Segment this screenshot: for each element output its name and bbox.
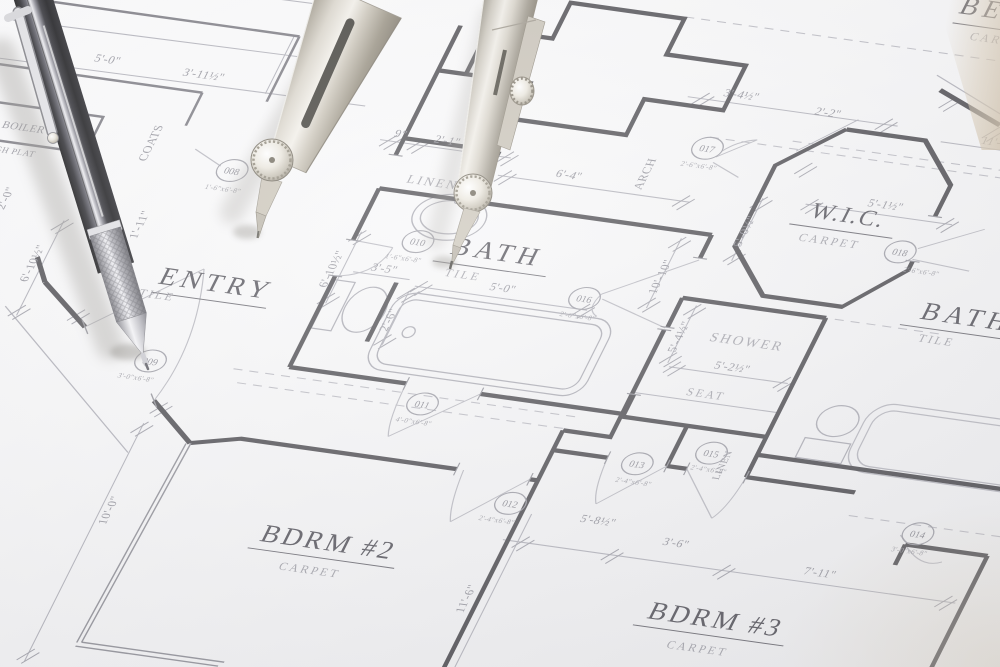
room-label-bdrm3: BDRM #3 <box>643 597 789 642</box>
label-arch: ARCH <box>630 157 660 191</box>
dim-text: 2'-0" <box>0 186 18 211</box>
divider-needle-tip <box>258 231 259 238</box>
door-tag-number: 013 <box>627 459 647 471</box>
dim-text: 11'- <box>979 134 1000 149</box>
divider-thumbscrew-center <box>269 157 275 163</box>
door-tag-number: 008 <box>222 166 242 178</box>
door-size: 4'-0"x6'-8" <box>394 415 433 428</box>
closet-label-coats: COATS <box>135 124 167 162</box>
finish-label-bdrm2: CARPET <box>276 559 343 580</box>
room-label-bdrm2: BDRM #2 <box>256 519 402 564</box>
dim-text: 3'-6" <box>660 535 692 551</box>
door-tag-number: 014 <box>907 529 927 541</box>
compass-thumbscrew-center <box>470 190 476 196</box>
door-size: 2'-4"x6'-8" <box>477 514 516 527</box>
door-size: 2'-4"x6'-8" <box>614 475 653 488</box>
walls-bedroom2 <box>75 441 325 666</box>
dim-text: 5'-8½" <box>578 512 619 529</box>
door-size: 2'-6"x6'-8" <box>901 265 940 278</box>
finish-label-bdrm3: CARPET <box>664 638 731 659</box>
finish-label-bedroom1: CARPET <box>967 30 1000 51</box>
dim-text: 5'-0" <box>92 51 124 67</box>
tools <box>2 0 545 369</box>
dim-text: 10'-10" <box>645 258 676 294</box>
dim-text: 10'-0" <box>95 495 123 526</box>
door-size: 3'-0"x6'-8" <box>116 371 155 384</box>
dim-text: 5'-0" <box>487 280 519 296</box>
dim-text: 6'-4" <box>553 167 585 183</box>
dim-text: 1'-11" <box>125 209 153 239</box>
door-tag-number: 017 <box>697 144 717 156</box>
door-size: 2'-6"x6'-8" <box>679 159 718 172</box>
finish-label-bath: TILE <box>442 266 484 284</box>
door-tag-number: 010 <box>407 237 427 249</box>
door-tag-number: 018 <box>890 247 910 259</box>
floor-plan-drawing: 008 1'-6"x6'-8" 009 3'-0"x6'-8" 010 1'-6… <box>0 0 1000 667</box>
finish-label-wic: CARPET <box>796 230 863 251</box>
finish-label-bath2: TILE <box>916 331 958 349</box>
blueprint-photo: 008 1'-6"x6'-8" 009 3'-0"x6'-8" 010 1'-6… <box>0 0 1000 667</box>
room-label-bath2: BATH <box>916 297 1000 336</box>
door-tag-number: 015 <box>701 449 721 461</box>
room-label-shower: SHOWER <box>707 331 787 355</box>
pencil-clip-ball <box>48 133 59 144</box>
door-tag-number: 016 <box>574 294 594 306</box>
dim-text: 7'-11" <box>801 564 839 581</box>
compass-adjust-wheel <box>510 77 534 105</box>
dim-text: 5'-0½" <box>730 214 760 247</box>
dim-text: 3'-11½" <box>180 66 227 84</box>
pencil-lead-sleeve <box>143 355 146 364</box>
door-tag-number: 012 <box>500 499 520 511</box>
